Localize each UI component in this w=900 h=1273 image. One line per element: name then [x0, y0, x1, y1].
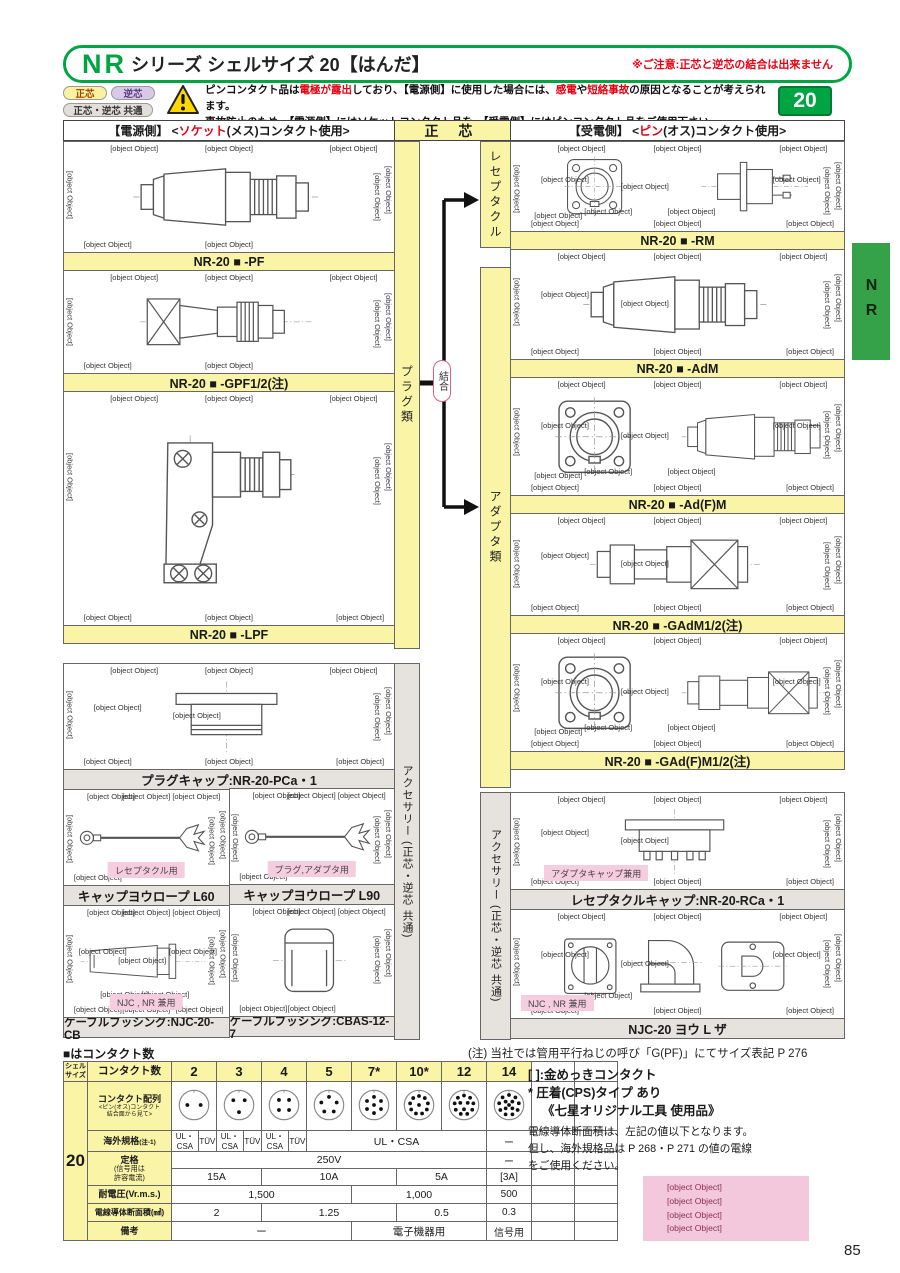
warning-icon [166, 84, 200, 116]
dimension-label: [object Object] [338, 792, 386, 800]
dimension-label: [object Object] [374, 173, 382, 221]
dimension-label: [object Object] [541, 552, 589, 560]
strip-receptacle-group: レセプタクル [480, 141, 511, 248]
dimension-label: [object Object] [654, 348, 702, 356]
dimension-label: [object Object] [541, 678, 589, 686]
receptacle-cap-panel: [object Object][object Object][object Ob… [510, 792, 845, 910]
table-row: 備考 ー 電子機器用 信号用 [64, 1222, 618, 1241]
page-title-text: シリーズ シェルサイズ 20【はんだ】 [131, 51, 430, 77]
count-5: 5 [307, 1062, 352, 1082]
dimension-label: [object Object] [534, 472, 582, 480]
pin-arrangement-7 [352, 1082, 397, 1131]
usage-badge: プラグ,アダプタ用 [267, 861, 356, 877]
plug-cap-drawing [111, 675, 342, 759]
pin-arrangement-4 [262, 1082, 307, 1131]
product-label: NR-20 ■ -GPF1/2(注) [63, 374, 395, 392]
dimension-label: [object Object] [172, 793, 220, 801]
dimension-label: [object Object] [773, 951, 821, 959]
withstand-14: 500 [487, 1186, 532, 1204]
dimension-label: [object Object] [558, 796, 606, 804]
dimension-label: [object Object] [584, 468, 632, 476]
technical-drawing: [object Object][object Object][object Ob… [510, 141, 845, 232]
dimension-label: [object Object] [621, 300, 669, 308]
dimension-label: [object Object] [232, 934, 240, 982]
product-label: NR-20 ■ -RM [510, 232, 845, 250]
dimension-label: [object Object] [110, 667, 158, 675]
dimension-label: [object Object] [621, 183, 669, 191]
dimension-label: [object Object] [773, 176, 821, 184]
product-label: NR-20 ■ -GAd(F)M1/2(注) [510, 752, 845, 770]
dimension-label: [object Object] [385, 293, 393, 341]
dimension-label: [object Object] [239, 1005, 287, 1013]
dimension-label: [object Object] [654, 484, 702, 492]
dimension-label: [object Object] [779, 637, 827, 645]
dimension-label: [object Object] [385, 687, 393, 735]
join-arrow [418, 141, 480, 561]
dimension-label: [object Object] [824, 281, 832, 329]
dimension-label: [object Object] [385, 929, 393, 977]
dimension-label: [object Object] [786, 220, 834, 228]
strip-accessory-left: アクセサリー (正芯・逆芯 共通) [394, 663, 420, 1040]
dimension-label: [object Object] [786, 604, 834, 612]
withstand-b: 1,000 [352, 1186, 487, 1204]
dimension-label: [object Object] [779, 796, 827, 804]
crimp-type-note: * 圧着(CPS)タイプ あり [528, 1084, 848, 1102]
dimension-label: [object Object] [205, 274, 253, 282]
dimension-label: [object Object] [668, 468, 716, 476]
dimension-label: [object Object] [541, 176, 589, 184]
dimension-label: [object Object] [779, 381, 827, 389]
remarks-b: 電子機器用 [352, 1222, 487, 1241]
right-product-list: [object Object][object Object][object Ob… [510, 141, 845, 770]
pin-arrangement-10 [397, 1082, 442, 1131]
dimension-label: [object Object] [118, 957, 166, 965]
connector-drawing [87, 281, 364, 363]
dimension-label: [object Object] [654, 381, 702, 389]
foreign-std-label: 海外規格(注-1) [88, 1131, 172, 1152]
empty-cell [575, 1204, 618, 1222]
note-line: [object Object] [651, 1209, 801, 1223]
dimension-label: [object Object] [824, 820, 832, 868]
dimension-label: [object Object] [513, 818, 521, 866]
product-panel: [object Object][object Object][object Ob… [510, 513, 845, 634]
dimension-label: [object Object] [779, 145, 827, 153]
dimension-label: [object Object] [330, 395, 378, 403]
accessory-label: ケーブルブッシング:NJC-20-CB [63, 1018, 230, 1038]
dimension-label: [object Object] [330, 145, 378, 153]
note-line: [object Object] [651, 1195, 801, 1209]
accessory-label: NJC-20 ヨウ L ザ [510, 1019, 845, 1039]
count-7: 7* [352, 1062, 397, 1082]
count-10: 10* [397, 1062, 442, 1082]
plug-cap-panel: [object Object][object Object][object Ob… [63, 663, 395, 790]
dimension-label: [object Object] [541, 951, 589, 959]
wire-area-14: 0.3 [487, 1204, 532, 1222]
dimension-label: [object Object] [531, 484, 579, 492]
dimension-label: [object Object] [558, 381, 606, 389]
dimension-label: [object Object] [172, 909, 220, 917]
dimension-label: [object Object] [79, 948, 127, 956]
gold-plating-note: [ ]:金めっきコンタクト [528, 1066, 848, 1084]
dimension-label: [object Object] [534, 728, 582, 736]
rated-current-c: 5A [397, 1169, 487, 1186]
count-header: コンタクト数 [88, 1062, 172, 1082]
dimension-label: [object Object] [835, 934, 843, 982]
technical-drawing: [object Object][object Object][object Ob… [63, 789, 230, 886]
pin-arrangement-5 [307, 1082, 352, 1131]
dimension-label: [object Object] [110, 395, 158, 403]
withstand-label: 耐電圧(Vr.m.s.) [88, 1186, 172, 1204]
empty-cell [532, 1204, 575, 1222]
technical-drawing: [object Object][object Object][object Ob… [510, 249, 845, 360]
wire-area-b: 1.25 [262, 1204, 397, 1222]
dimension-label: [object Object] [668, 208, 716, 216]
empty-cell [575, 1186, 618, 1204]
dimension-label: [object Object] [94, 704, 142, 712]
remarks-label: 備考 [88, 1222, 172, 1241]
dimension-label: [object Object] [288, 792, 336, 800]
product-label: NR-20 ■ -AdM [510, 360, 845, 378]
caution-note: ※ご注意:正芯と逆芯の結合は出来ません [632, 56, 833, 72]
dimension-label: [object Object] [338, 908, 386, 916]
dimension-label: [object Object] [336, 614, 384, 622]
dimension-label: [object Object] [205, 667, 253, 675]
dimension-label: [object Object] [66, 815, 74, 863]
accessory-label: キャップヨウロープ L60 [63, 886, 230, 906]
dimension-label: [object Object] [779, 253, 827, 261]
dimension-label: [object Object] [531, 348, 579, 356]
wire-area-label: 電線導体断面積(㎟) [88, 1204, 172, 1222]
note-1-box: [object Object][object Object][object Ob… [643, 1176, 809, 1241]
product-label: NR-20 ■ -LPF [63, 626, 395, 644]
dimension-label: [object Object] [513, 408, 521, 456]
technical-drawing: [object Object][object Object][object Ob… [63, 663, 395, 770]
arrangement-label: コンタクト配列<ピン(オス)コンタクト結合面から見て> [88, 1082, 172, 1131]
dimension-label: [object Object] [110, 274, 158, 282]
technical-drawing: [object Object][object Object][object Ob… [63, 905, 230, 1018]
dimension-label: [object Object] [374, 816, 382, 864]
rating-label: 定格(信号用は許容電流) [88, 1152, 172, 1186]
table-caption: ■はコンタクト数 [63, 1045, 154, 1062]
dimension-label: [object Object] [835, 162, 843, 210]
dimension-label: [object Object] [584, 724, 632, 732]
product-panel: [object Object][object Object][object Ob… [63, 141, 395, 271]
warning-line-1: ピンコンタクト品は電極が露出しており、【電源側】に使用した場合には、感電や短絡事… [205, 83, 771, 115]
dimension-label: [object Object] [534, 212, 582, 220]
note-line: [object Object] [651, 1181, 801, 1195]
product-panel: [object Object][object Object][object Ob… [63, 270, 395, 392]
dimension-label: [object Object] [531, 220, 579, 228]
g-thread-note: (注) 当社では管用平行ねじの呼び「G(PF)」にてサイズ表記 P 276 [468, 1045, 807, 1061]
foreign-std-4: UL・CSATÜV [262, 1131, 307, 1152]
strip-plug-group: プラグ類 [394, 141, 420, 649]
product-panel: [object Object][object Object][object Ob… [510, 141, 845, 250]
side-index-tab: NR [852, 243, 890, 360]
dimension-label: [object Object] [654, 220, 702, 228]
dimension-label: [object Object] [176, 1006, 224, 1014]
dimension-label: [object Object] [654, 637, 702, 645]
dimension-label: [object Object] [205, 758, 253, 766]
dimension-label: [object Object] [654, 878, 702, 886]
dimension-label: [object Object] [385, 166, 393, 214]
technical-drawing: [object Object][object Object][object Ob… [510, 377, 845, 496]
dimension-label: [object Object] [621, 432, 669, 440]
dimension-label: [object Object] [621, 837, 669, 845]
dimension-label: [object Object] [786, 740, 834, 748]
left-product-list: [object Object][object Object][object Ob… [63, 141, 395, 644]
dimension-label: [object Object] [288, 1005, 336, 1013]
rated-voltage-14: ー [487, 1152, 532, 1169]
table-row: 耐電圧(Vr.m.s.) 1,500 1,000 500 [64, 1186, 618, 1204]
wire-area-a: 2 [172, 1204, 262, 1222]
technical-drawing: [object Object][object Object][object Ob… [510, 909, 845, 1019]
shell-size-header: シェルサイズ [64, 1062, 88, 1082]
dimension-label: [object Object] [219, 930, 227, 978]
dimension-label: [object Object] [824, 542, 832, 590]
dimension-label: [object Object] [122, 793, 170, 801]
remarks-14: 信号用 [487, 1222, 532, 1241]
count-3: 3 [217, 1062, 262, 1082]
right-column-header: 【受電側】 <ピン(オス)コンタクト使用> [510, 120, 845, 141]
dimension-label: [object Object] [205, 145, 253, 153]
accessory-label: レセプタクルキャップ:NR-20-RCa・1 [510, 890, 845, 910]
dimension-label: [object Object] [66, 691, 74, 739]
dimension-label: [object Object] [668, 724, 716, 732]
cable-bushing-drawing [264, 917, 354, 1004]
technical-drawing: [object Object][object Object][object Ob… [510, 792, 845, 890]
dimension-label: [object Object] [835, 660, 843, 708]
dimension-label: [object Object] [654, 517, 702, 525]
connector-drawing [87, 415, 364, 601]
right-accessories: [object Object][object Object][object Ob… [510, 792, 845, 1039]
pin-arrangement-2 [172, 1082, 217, 1131]
rated-current-a: 15A [172, 1169, 262, 1186]
dimension-label: [object Object] [374, 300, 382, 348]
wire-usage-note: 電線導体断面積は、左記の値以下となります。但し、海外規格品は P 268・P 2… [528, 1124, 848, 1174]
join-label: 結合 [433, 360, 451, 402]
badge-common-core: 正芯・逆芯 共通 [63, 103, 153, 117]
foreign-std-14: ー [487, 1131, 532, 1152]
foreign-std-span: UL・CSA [307, 1131, 487, 1152]
product-panel: [object Object][object Object][object Ob… [510, 377, 845, 514]
dimension-label: [object Object] [835, 404, 843, 452]
pin-arrangement-12 [442, 1082, 487, 1131]
dimension-label: [object Object] [513, 938, 521, 986]
dimension-label: [object Object] [558, 253, 606, 261]
series-name: NR [82, 49, 127, 80]
center-column-header: 正 芯 [394, 120, 511, 141]
dimension-label: [object Object] [385, 810, 393, 858]
dimension-label: [object Object] [84, 614, 132, 622]
usage-badge: NJC , NR 兼用 [521, 995, 594, 1011]
count-2: 2 [172, 1062, 217, 1082]
technical-drawing: [object Object][object Object][object Ob… [510, 633, 845, 752]
dimension-label: [object Object] [654, 253, 702, 261]
dimension-label: [object Object] [621, 960, 669, 968]
wire-area-c: 0.5 [397, 1204, 487, 1222]
dimension-label: [object Object] [835, 814, 843, 862]
cap-rope-drawing [71, 816, 216, 860]
technical-drawing: [object Object][object Object][object Ob… [63, 141, 395, 253]
dimension-label: [object Object] [205, 395, 253, 403]
technical-drawing: [object Object][object Object][object Ob… [510, 513, 845, 616]
usage-badge: アダプタキャップ兼用 [544, 865, 648, 881]
bushing-njc-panel: [object Object][object Object][object Ob… [63, 905, 230, 1038]
dimension-label: [object Object] [654, 913, 702, 921]
dimension-label: [object Object] [288, 908, 336, 916]
connector-drawing [87, 153, 364, 241]
usage-badge: レセプタクル用 [108, 862, 185, 878]
dimension-label: [object Object] [773, 678, 821, 686]
usage-badge: NJC , NR 兼用 [110, 994, 183, 1010]
dimension-label: [object Object] [786, 484, 834, 492]
dimension-label: [object Object] [558, 913, 606, 921]
product-panel: [object Object][object Object][object Ob… [63, 391, 395, 644]
dimension-label: [object Object] [773, 422, 821, 430]
dimension-label: [object Object] [558, 145, 606, 153]
dimension-label: [object Object] [374, 457, 382, 505]
dimension-label: [object Object] [541, 291, 589, 299]
dimension-label: [object Object] [835, 536, 843, 584]
dimension-label: [object Object] [66, 298, 74, 346]
dimension-label: [object Object] [654, 1007, 702, 1015]
note-line: [object Object] [651, 1222, 801, 1236]
rope60-panel: [object Object][object Object][object Ob… [63, 789, 230, 906]
dimension-label: [object Object] [621, 560, 669, 568]
withstand-a: 1,500 [172, 1186, 352, 1204]
dimension-label: [object Object] [513, 540, 521, 588]
dimension-label: [object Object] [654, 740, 702, 748]
dimension-label: [object Object] [558, 637, 606, 645]
dimension-label: [object Object] [205, 362, 253, 370]
foreign-std-2: UL・CSATÜV [172, 1131, 217, 1152]
dimension-label: [object Object] [654, 796, 702, 804]
dimension-label: [object Object] [513, 664, 521, 712]
dimension-label: [object Object] [541, 829, 589, 837]
dimension-label: [object Object] [531, 740, 579, 748]
dimension-label: [object Object] [385, 443, 393, 491]
dimension-label: [object Object] [824, 411, 832, 459]
connector-drawing [535, 524, 815, 605]
strip-accessory-right: アクセサリー (正芯・逆芯 共通) [480, 792, 511, 1040]
dimension-label: [object Object] [786, 878, 834, 886]
accessory-label: プラグキャップ:NR-20-PCa・1 [63, 770, 395, 790]
dimension-label: [object Object] [558, 517, 606, 525]
accessory-label: ケーブルブッシング:CBAS-12-7 [229, 1017, 396, 1037]
dimension-label: [object Object] [173, 712, 221, 720]
dimension-label: [object Object] [122, 909, 170, 917]
dimension-label: [object Object] [66, 453, 74, 501]
dimension-label: [object Object] [336, 758, 384, 766]
dimension-label: [object Object] [205, 614, 253, 622]
page-number: 85 [844, 1242, 861, 1259]
product-label: NR-20 ■ -GAdM1/2(注) [510, 616, 845, 634]
dimension-label: [object Object] [786, 348, 834, 356]
dimension-label: [object Object] [654, 604, 702, 612]
dimension-label: [object Object] [779, 517, 827, 525]
dimension-label: [object Object] [330, 667, 378, 675]
table-row: 電線導体断面積(㎟) 2 1.25 0.5 0.3 [64, 1204, 618, 1222]
connector-drawing [535, 261, 815, 348]
dimension-label: [object Object] [84, 362, 132, 370]
count-12: 12 [442, 1062, 487, 1082]
dimension-label: [object Object] [66, 171, 74, 219]
technical-drawing: [object Object][object Object][object Ob… [63, 391, 395, 626]
dimension-label: [object Object] [110, 145, 158, 153]
shell-size-value: 20 [64, 1082, 88, 1241]
rated-voltage: 250V [172, 1152, 487, 1169]
dimension-label: [object Object] [374, 693, 382, 741]
product-panel: [object Object][object Object][object Ob… [510, 249, 845, 378]
empty-cell [575, 1222, 618, 1241]
dimension-label: [object Object] [531, 604, 579, 612]
dimension-label: [object Object] [205, 241, 253, 249]
cap-rope-drawing [236, 815, 381, 859]
l-bracket-panel: [object Object][object Object][object Ob… [510, 909, 845, 1039]
foreign-std-3: UL・CSATÜV [217, 1131, 262, 1152]
rated-current-b: 10A [262, 1169, 397, 1186]
product-panel: [object Object][object Object][object Ob… [510, 633, 845, 770]
rated-current-14: [3A] [487, 1169, 532, 1186]
dimension-label: [object Object] [219, 811, 227, 859]
l-bracket-drawing [525, 925, 825, 1003]
remarks-a: ー [172, 1222, 352, 1241]
count-4: 4 [262, 1062, 307, 1082]
dimension-label: [object Object] [232, 814, 240, 862]
dimension-label: [object Object] [374, 936, 382, 984]
dimension-label: [object Object] [541, 422, 589, 430]
dimension-label: [object Object] [824, 667, 832, 715]
dimension-label: [object Object] [208, 817, 216, 865]
dimension-label: [object Object] [66, 935, 74, 983]
technical-drawing: [object Object][object Object][object Ob… [63, 270, 395, 374]
tool-note: 《七星オリジナル工具 使用品》 [528, 1102, 848, 1120]
badge-reverse-core: 逆芯 [111, 86, 155, 100]
dimension-label: [object Object] [786, 1007, 834, 1015]
accessory-label: キャップヨウロープ L90 [229, 885, 396, 905]
footnotes: [ ]:金めっきコンタクト * 圧着(CPS)タイプ あり 《七星オリジナル工具… [528, 1066, 848, 1175]
empty-cell [532, 1222, 575, 1241]
shell-size-badge: 20 [778, 86, 832, 116]
dimension-label: [object Object] [824, 940, 832, 988]
dimension-label: [object Object] [513, 165, 521, 213]
left-accessories: [object Object][object Object][object Ob… [63, 663, 395, 1038]
pin-arrangement-14 [487, 1082, 532, 1131]
count-14: 14 [487, 1062, 532, 1082]
rope90-panel: [object Object][object Object][object Ob… [229, 788, 396, 906]
dimension-label: [object Object] [779, 913, 827, 921]
dimension-label: [object Object] [654, 145, 702, 153]
empty-cell [532, 1186, 575, 1204]
dimension-label: [object Object] [330, 274, 378, 282]
technical-drawing: [object Object][object Object][object Ob… [229, 788, 396, 885]
pin-arrangement-3 [217, 1082, 262, 1131]
strip-adapter-group: アダプタ類 [480, 267, 511, 788]
left-column-header: 【電源側】 <ソケット(メス)コンタクト使用> [63, 120, 395, 141]
product-label: NR-20 ■ -PF [63, 253, 395, 271]
badge-normal-core: 正芯 [63, 86, 107, 100]
product-label: NR-20 ■ -Ad(F)M [510, 496, 845, 514]
dimension-label: [object Object] [169, 948, 217, 956]
dimension-label: [object Object] [84, 241, 132, 249]
page-title: NR シリーズ シェルサイズ 20【はんだ】 ※ご注意:正芯と逆芯の結合は出来ま… [63, 45, 852, 83]
dimension-label: [object Object] [824, 167, 832, 215]
bushing-cbas-panel: [object Object][object Object][object Ob… [229, 904, 396, 1038]
dimension-label: [object Object] [208, 937, 216, 985]
dimension-label: [object Object] [84, 758, 132, 766]
technical-drawing: [object Object][object Object][object Ob… [229, 904, 396, 1017]
dimension-label: [object Object] [621, 688, 669, 696]
